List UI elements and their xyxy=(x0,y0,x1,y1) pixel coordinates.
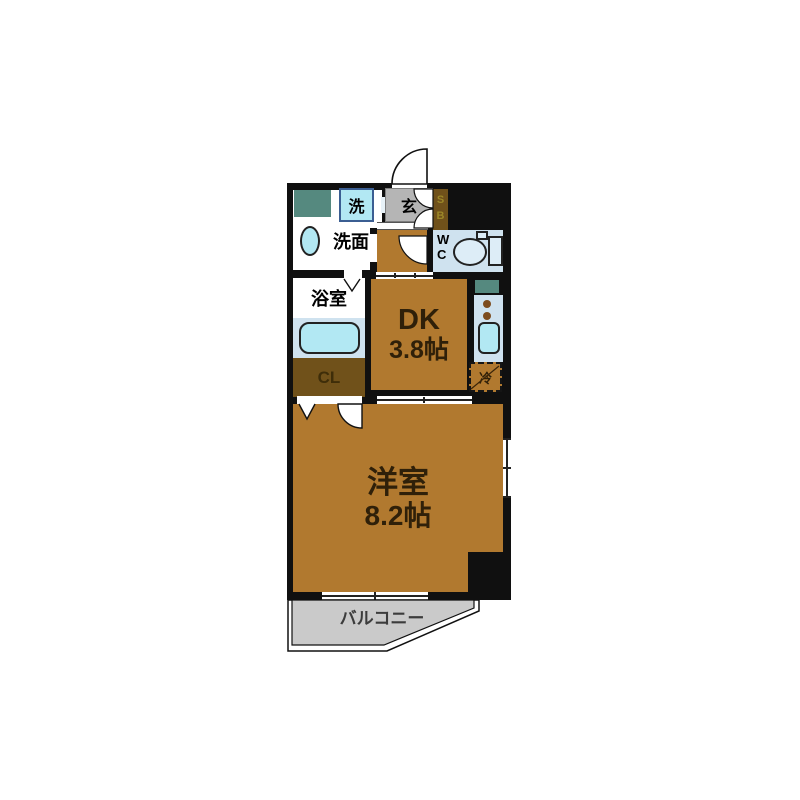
washing-machine-label: 洗 xyxy=(348,193,364,217)
bathroom-door-opening xyxy=(344,270,362,278)
window-tick xyxy=(374,592,376,600)
washbasin-icon xyxy=(300,226,320,256)
wall-notch xyxy=(468,552,511,600)
shoe-box-letter-s: S xyxy=(433,192,448,208)
window-tick xyxy=(503,467,511,469)
toilet-bowl-icon xyxy=(453,238,487,266)
shoe-box: S B xyxy=(433,189,448,230)
shoe-box-letter-b: B xyxy=(433,208,448,224)
living-size: 8.2帖 xyxy=(365,500,432,532)
side-window xyxy=(503,438,511,498)
room-bathroom: 浴室 xyxy=(293,278,365,318)
stove-burner-icon xyxy=(483,300,491,308)
floor-plan: 洗 洗面 玄 S B W C DK 3.8帖 冷 浴室 xyxy=(0,0,800,800)
dk-living-sliding-door xyxy=(377,396,472,404)
wc-letter-w: W xyxy=(437,232,453,247)
refrigerator-label: 冷 xyxy=(479,368,492,387)
window-tick xyxy=(503,438,511,440)
entrance-label: 玄 xyxy=(401,193,417,217)
closet-door-opening xyxy=(297,396,362,404)
dk-size: 3.8帖 xyxy=(389,336,449,364)
closet-label: CL xyxy=(318,368,341,388)
washroom-door-opening xyxy=(370,234,377,262)
refrigerator-space: 冷 xyxy=(469,362,502,392)
toilet-tank-icon xyxy=(488,236,503,266)
stove-burner-icon xyxy=(483,312,491,320)
entrance-genkan: 玄 xyxy=(385,188,433,222)
bathtub-icon xyxy=(299,322,360,354)
room-closet: CL xyxy=(293,358,365,397)
sliding-door-tick xyxy=(423,397,425,403)
hallway xyxy=(377,230,427,272)
threshold-tick xyxy=(414,273,416,278)
entrance-step xyxy=(377,222,428,230)
kitchen-sink-icon xyxy=(478,322,500,354)
dk-label: DK xyxy=(398,305,440,336)
entrance-door-arc xyxy=(392,149,427,184)
window-tick xyxy=(503,496,511,498)
wc-letter-c: C xyxy=(437,247,453,262)
living-label: 洋室 xyxy=(367,465,429,500)
balcony-label: バルコニー xyxy=(322,604,442,629)
pipe-space xyxy=(294,190,331,217)
bathroom-label: 浴室 xyxy=(311,285,347,311)
threshold-tick xyxy=(394,273,396,278)
balcony-sliding-window xyxy=(322,592,428,600)
wc-label: W C xyxy=(437,232,453,262)
kitchen-pipe-space xyxy=(475,280,499,293)
washing-machine-space: 洗 xyxy=(339,188,374,222)
threshold-line xyxy=(376,275,433,277)
hall-dk-threshold xyxy=(376,272,433,279)
room-dk: DK 3.8帖 xyxy=(371,279,467,390)
